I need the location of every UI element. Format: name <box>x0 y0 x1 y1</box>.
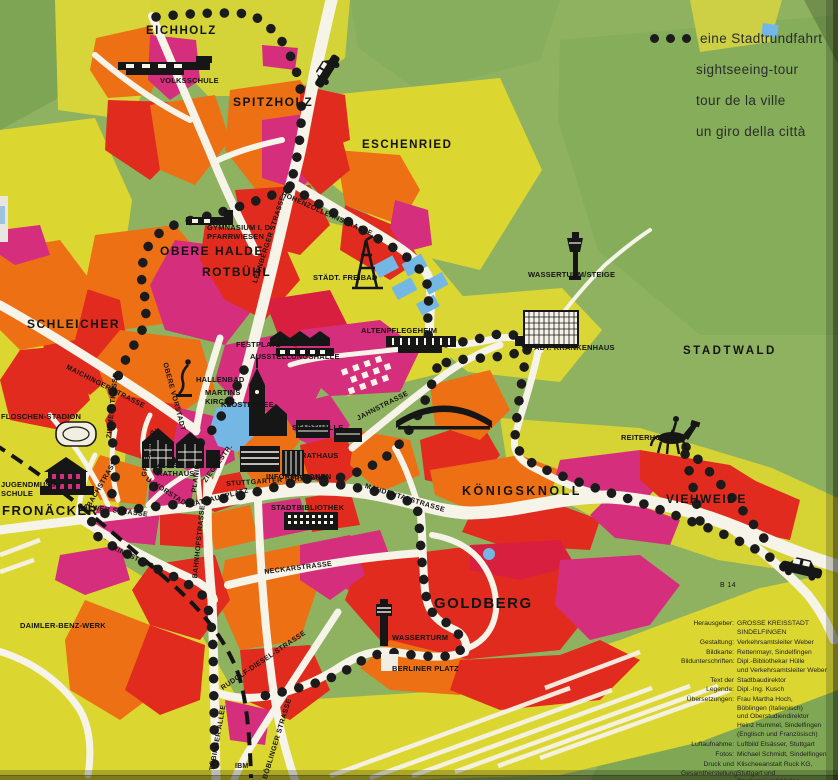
legend-row: tour de la ville <box>696 92 822 109</box>
rathaus-complex-icon <box>240 446 304 476</box>
legend-row: eine Stadtrundfahrt <box>650 30 822 47</box>
credit-label: Luftaufnahme: <box>681 741 734 750</box>
legend-label-en: sightseeing-tour <box>696 62 798 77</box>
credit-label: Bildunterschriften: <box>681 658 734 676</box>
floschen-stadion-icon <box>56 422 96 446</box>
credit-value: Luftbild Elsässer, Stuttgart <box>737 741 835 750</box>
credit-label: Text der Legende: <box>681 677 734 695</box>
credit-label: Gestaltung: <box>681 639 734 648</box>
credit-label: Bildkarte: <box>681 649 734 658</box>
credit-value: Dipl.-Bibliothekar Hülle und Verkehrsamt… <box>737 658 835 676</box>
credit-value: Stadtbaudirektor Dipl.-Ing. Kusch <box>737 677 835 695</box>
credit-value: Frau Martha Hoch, Böblingen (Italienisch… <box>737 696 835 740</box>
legend-label-it: un giro della città <box>696 124 806 139</box>
legend-label-fr: tour de la ville <box>696 93 786 108</box>
ausstellungshalle-icon <box>270 331 334 356</box>
pond <box>483 548 495 560</box>
krankenhaus-icon <box>515 311 578 348</box>
legend-row: un giro della città <box>696 123 822 140</box>
route-dots-icon <box>650 34 691 43</box>
credits-block: Herausgeber: GROSSE KREISSTADT SINDELFIN… <box>681 620 835 780</box>
route-legend: eine Stadtrundfahrt sightseeing-tour tou… <box>650 30 822 154</box>
credit-value: GROSSE KREISSTADT SINDELFINGEN <box>737 620 835 638</box>
credit-label: Herausgeber: <box>681 620 734 638</box>
legend-label-de: eine Stadtrundfahrt <box>700 31 822 46</box>
sightseeing-map: EICHHOLZ SPITZHOLZ ESCHENRIED OBERE HALD… <box>0 0 838 780</box>
credit-value: Klischeeanstalt Ruck KG, Stuttgart und D… <box>737 761 835 780</box>
city-block <box>160 512 205 548</box>
fold-sliver <box>0 206 5 224</box>
berliner-platz-square <box>381 654 398 671</box>
stadtbibliothek-icon <box>284 512 338 530</box>
credit-label: Übersetzungen: <box>681 696 734 740</box>
credit-label: Druck und Gesamtherstellung: <box>681 761 734 780</box>
credit-label: Fotos: <box>681 751 734 760</box>
credit-value: Verkehrsamtsleiter Weber <box>737 639 835 648</box>
legend-row: sightseeing-tour <box>696 61 822 78</box>
credit-value: Rettenmayr, Sindelfingen <box>737 649 835 658</box>
credit-value: Michael Schmidt, Sindelfingen <box>737 751 835 760</box>
